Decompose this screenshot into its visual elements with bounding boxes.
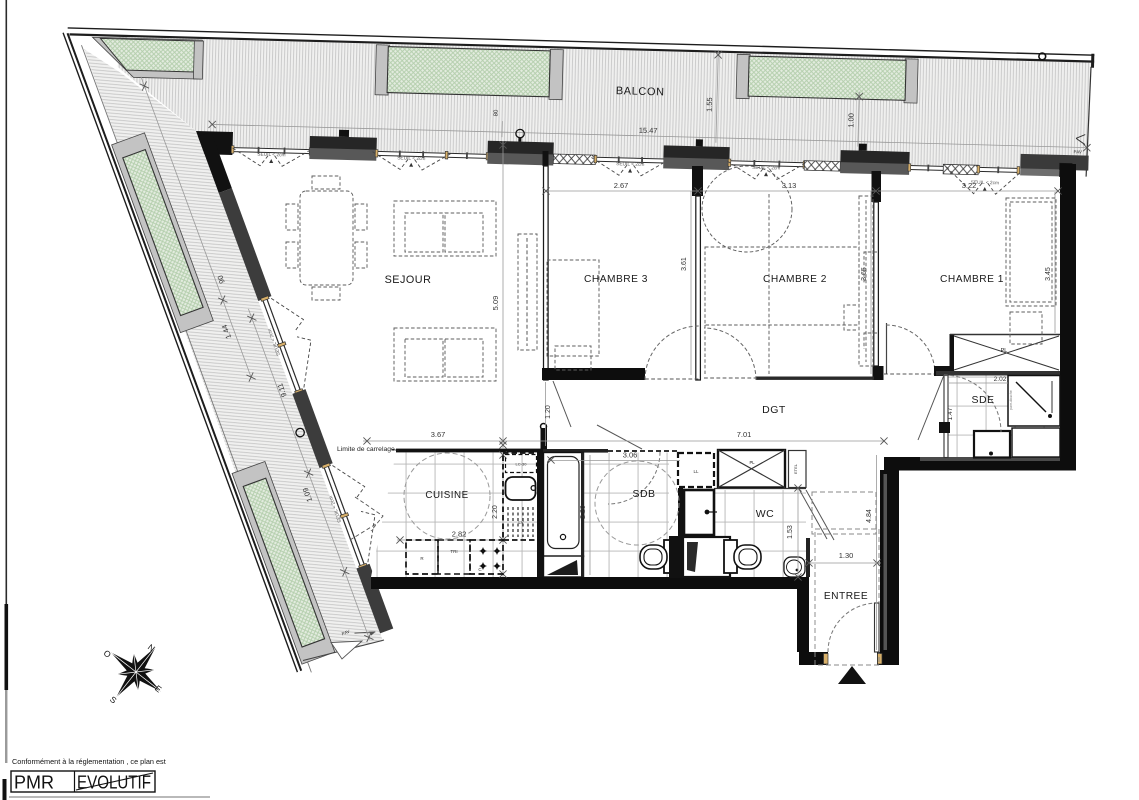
svg-text:2.20: 2.20 [492,505,499,519]
svg-text:2.20: 2.20 [580,505,587,519]
svg-text:CHAMBRE 2: CHAMBRE 2 [763,274,827,285]
svg-text:LV: LV [518,520,523,525]
svg-text:1.55: 1.55 [705,97,714,112]
svg-text:WC: WC [756,508,775,520]
svg-text:PL: PL [1001,348,1008,354]
svg-text:SDE: SDE [971,394,994,406]
svg-text:LL: LL [693,469,699,474]
svg-text:2.67: 2.67 [614,181,629,190]
svg-text:TRI: TRI [450,549,457,554]
svg-text:PL: PL [749,460,755,465]
svg-text:CUISINE: CUISINE [425,490,468,501]
svg-text:1.53: 1.53 [787,525,794,539]
svg-text:CHAMBRE 1: CHAMBRE 1 [940,274,1004,285]
svg-text:ETEL: ETEL [793,463,798,474]
svg-text:Conformément à la réglementati: Conformément à la réglementation , ce pl… [12,757,166,766]
svg-text:Limite de carrelage: Limite de carrelage [337,446,395,453]
svg-text:SDB: SDB [632,488,655,500]
svg-text:3.06: 3.06 [623,451,638,460]
svg-text:3.61: 3.61 [681,257,688,271]
svg-text:SEUIL < 2cm: SEUIL < 2cm [616,161,644,168]
svg-text:SEUIL < 2cm: SEUIL < 2cm [397,155,425,162]
svg-text:3.65: 3.65 [861,267,868,281]
svg-text:4.84: 4.84 [866,509,873,523]
svg-text:pare-douche: pare-douche [1009,390,1013,410]
svg-text:1.20: 1.20 [545,405,552,419]
svg-text:2.02: 2.02 [994,376,1007,383]
svg-text:DGT: DGT [762,404,786,416]
svg-text:3.22: 3.22 [962,181,977,190]
svg-text:1.00: 1.00 [846,113,855,128]
svg-text:SEJOUR: SEJOUR [385,274,432,286]
svg-text:BALCON: BALCON [616,85,665,98]
svg-text:1.47: 1.47 [947,407,954,420]
svg-text:SEUIL < 2cm: SEUIL < 2cm [257,152,285,159]
svg-text:1.30: 1.30 [839,551,854,560]
svg-text:80: 80 [493,109,499,116]
svg-text:PAV: PAV [1074,149,1082,154]
svg-text:ENTREE: ENTREE [824,591,868,602]
svg-text:5.09: 5.09 [491,296,500,311]
svg-text:PMR: PMR [14,773,54,793]
svg-text:3.45: 3.45 [1045,267,1052,281]
svg-text:7.01: 7.01 [737,430,752,439]
svg-text:3.13: 3.13 [782,181,797,190]
svg-text:SEUIL < 2cm: SEUIL < 2cm [752,165,780,172]
svg-text:3.67: 3.67 [431,430,446,439]
svg-text:CHAMBRE 3: CHAMBRE 3 [584,274,648,285]
svg-text:15.47: 15.47 [639,126,658,135]
svg-text:LC-30: LC-30 [516,462,528,467]
svg-text:2.82: 2.82 [452,530,467,539]
